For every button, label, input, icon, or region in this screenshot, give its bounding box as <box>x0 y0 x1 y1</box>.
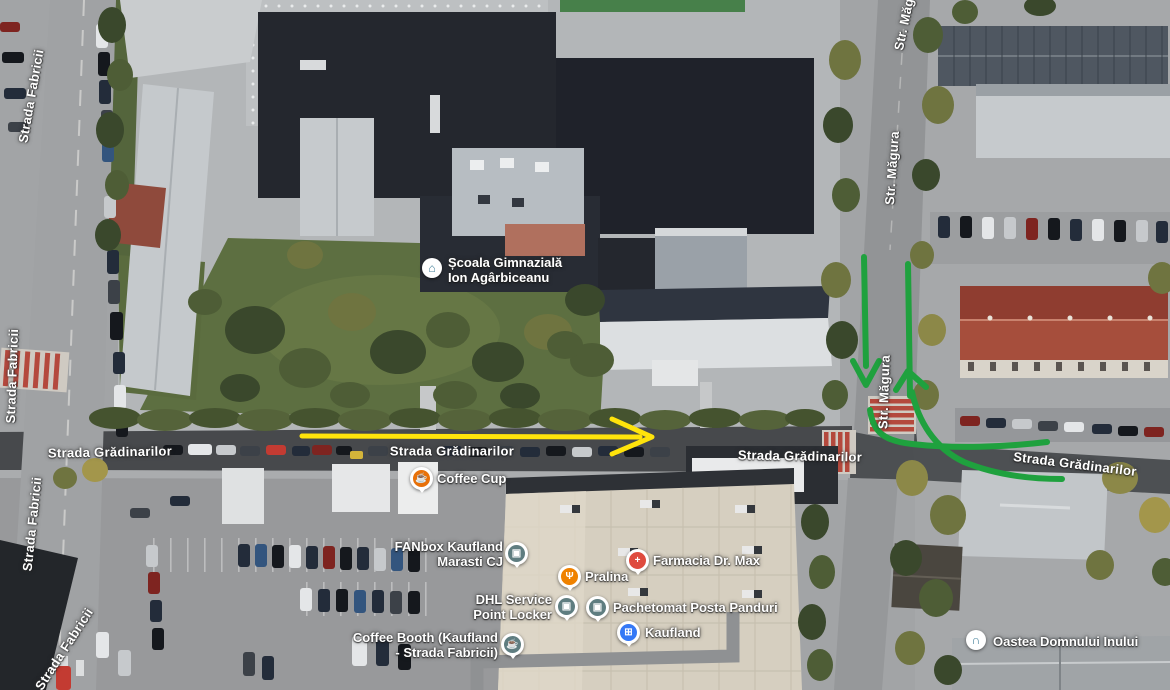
poi-label-fanbox[interactable]: FANbox Kaufland Marasti CJ <box>328 539 503 569</box>
poi-label-coffee-cup[interactable]: Coffee Cup <box>437 471 506 486</box>
coffee-icon[interactable]: ☕ <box>501 633 524 656</box>
poi-label-farmacia[interactable]: Farmacia Dr. Max <box>653 553 760 568</box>
organization-icon[interactable]: ∩ <box>966 630 986 650</box>
poi-label-coffee-booth[interactable]: Coffee Booth (Kaufland - Strada Fabricii… <box>323 630 498 660</box>
school-icon[interactable]: ⌂ <box>422 258 442 278</box>
shopping-cart-icon[interactable]: ⊞ <box>617 621 640 644</box>
parcel-locker-icon[interactable]: ▣ <box>586 596 609 619</box>
poi-label-pralina[interactable]: Pralina <box>585 569 628 584</box>
parcel-locker-icon[interactable]: ▣ <box>505 542 528 565</box>
poi-label-school[interactable]: Școala Gimnazială Ion Agârbiceanu <box>448 255 562 285</box>
coffee-icon[interactable]: ☕ <box>410 467 433 490</box>
food-icon[interactable]: Ψ <box>558 565 581 588</box>
poi-label-oastea[interactable]: Oastea Domnului Inului <box>993 634 1138 649</box>
poi-label-pachetomat[interactable]: Pachetomat Posta Panduri <box>613 600 778 615</box>
parcel-locker-icon[interactable]: ▣ <box>555 595 578 618</box>
poi-label-kaufland[interactable]: Kaufland <box>645 625 701 640</box>
map-canvas[interactable]: Strada Fabricii Strada Fabricii Strada F… <box>0 0 1170 690</box>
pharmacy-icon[interactable]: + <box>626 549 649 572</box>
satellite-imagery <box>0 0 1170 690</box>
poi-label-dhl[interactable]: DHL Service Point Locker <box>377 592 552 622</box>
